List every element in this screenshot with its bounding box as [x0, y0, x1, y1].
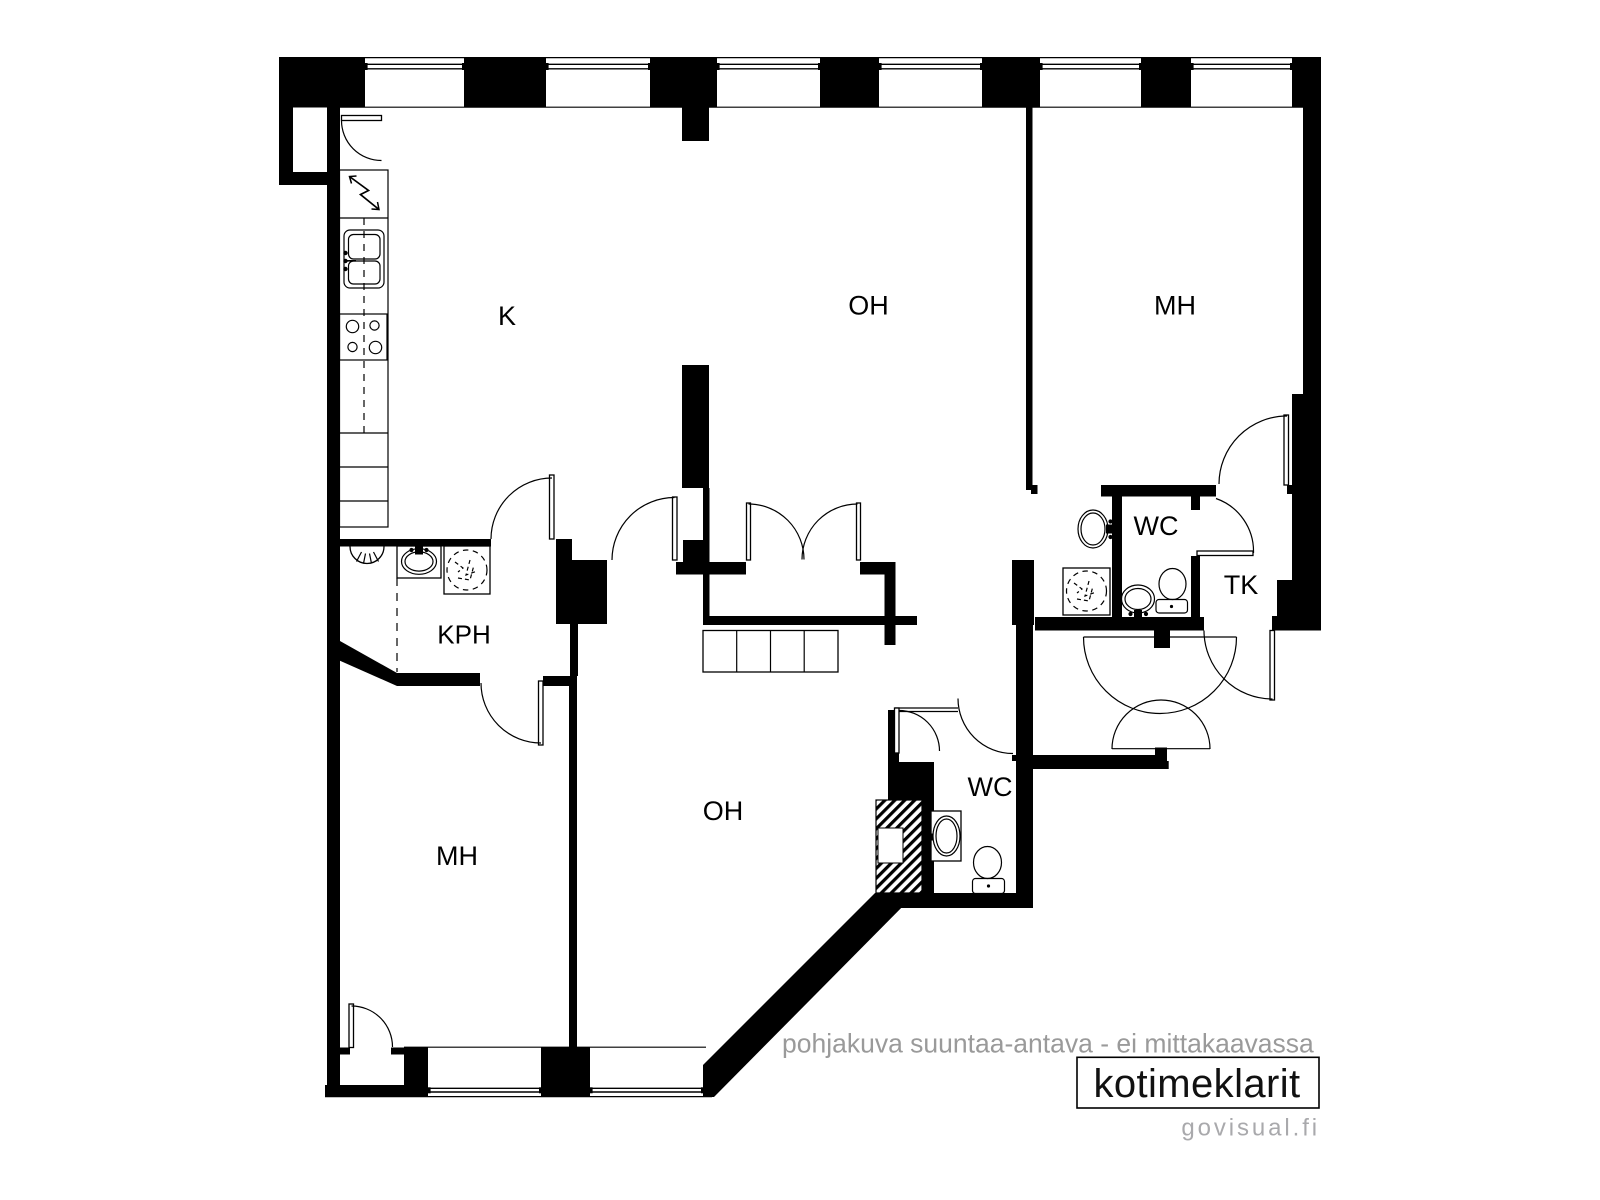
- svg-text:WC: WC: [1134, 511, 1179, 541]
- svg-text:WC: WC: [968, 772, 1013, 802]
- svg-text:OH: OH: [848, 291, 889, 321]
- svg-text:MH: MH: [1154, 291, 1196, 321]
- svg-text:OH: OH: [703, 796, 744, 826]
- svg-text:MH: MH: [436, 841, 478, 871]
- svg-text:pohjakuva suuntaa-antava - ei: pohjakuva suuntaa-antava - ei mittakaava…: [782, 1029, 1314, 1059]
- svg-text:govisual.fi: govisual.fi: [1181, 1115, 1320, 1142]
- svg-text:TK: TK: [1224, 570, 1259, 600]
- svg-text:kotimeklarit: kotimeklarit: [1093, 1062, 1300, 1106]
- svg-text:KPH: KPH: [437, 620, 490, 650]
- svg-text:K: K: [498, 301, 516, 331]
